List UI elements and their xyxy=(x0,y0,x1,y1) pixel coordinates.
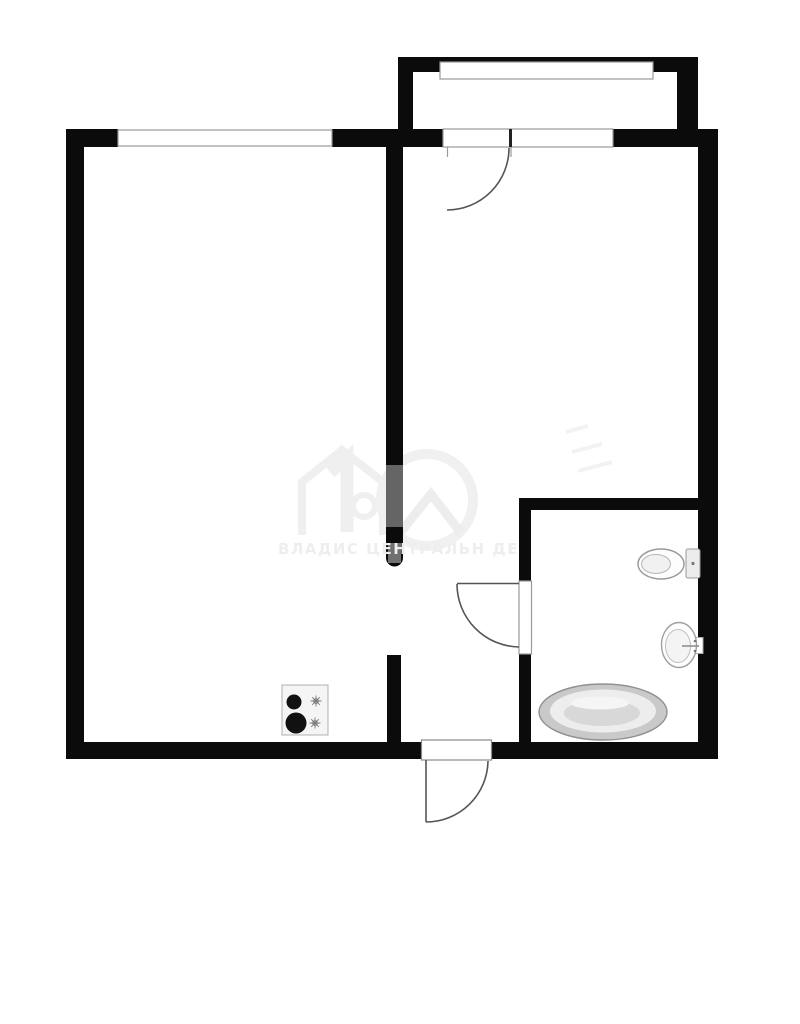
floor-plan-drawing xyxy=(0,0,800,1024)
floor-plan: ВЛАДИС ЦЕНТРАЛЬН ДЕ xyxy=(0,0,800,1024)
living-room-window xyxy=(118,130,332,146)
stove-burner-solid xyxy=(287,695,302,710)
balcony-block-divider xyxy=(509,129,512,147)
balcony xyxy=(398,57,698,132)
bathroom-top-wall xyxy=(519,498,698,510)
toilet-icon xyxy=(638,549,700,579)
balcony-door-arc xyxy=(447,148,509,210)
watermark-dashes xyxy=(566,426,612,471)
bathroom-door-arc xyxy=(457,584,519,647)
wall-openings xyxy=(118,129,613,760)
watermark-digit-one xyxy=(330,458,347,532)
balcony-window xyxy=(440,62,653,79)
right-wall xyxy=(698,129,718,759)
toilet-flush-button xyxy=(691,562,694,565)
entrance-door-opening xyxy=(422,740,492,760)
balcony-door-window-opening xyxy=(443,129,613,147)
left-wall xyxy=(66,129,84,759)
sink-icon xyxy=(662,623,704,668)
top-wall-segment xyxy=(332,129,443,147)
bottom-wall-segment xyxy=(66,742,422,759)
interior-walls xyxy=(386,147,698,742)
bathtub-highlight xyxy=(571,697,629,710)
watermark-logo xyxy=(302,426,612,546)
toilet-bowl-inner xyxy=(642,555,671,574)
entrance-door-arc xyxy=(426,761,488,822)
watermark-text: ВЛАДИС ЦЕНТРАЛЬН ДЕ xyxy=(278,540,538,558)
stove-icon xyxy=(282,685,328,735)
partition-wall-lower xyxy=(387,655,401,742)
bottom-wall-segment xyxy=(492,742,718,759)
watermark-small-circle xyxy=(353,495,375,517)
stove-burner-solid xyxy=(286,713,307,734)
bathroom-left-wall-lower xyxy=(519,653,531,742)
watermark-roof-icon xyxy=(400,494,461,533)
balcony-floor xyxy=(413,72,677,132)
bathroom-door-opening xyxy=(519,581,532,654)
bathtub-icon xyxy=(539,684,667,740)
sink-tap-dot xyxy=(694,650,697,653)
sink-tap-dot xyxy=(694,640,697,643)
